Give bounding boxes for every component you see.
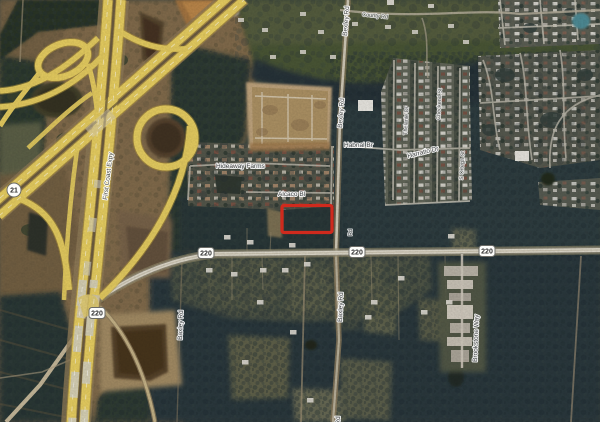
svg-text:Baxley Rd: Baxley Rd [334, 416, 342, 422]
svg-text:Alcaco Bl: Alcaco Bl [278, 191, 306, 198]
svg-text:Habnal Br: Habnal Br [344, 142, 374, 149]
svg-text:220: 220 [91, 311, 103, 318]
svg-text:220: 220 [481, 249, 493, 256]
svg-text:Baxley Rd: Baxley Rd [177, 310, 185, 340]
svg-text:Rd: Rd [348, 229, 354, 236]
svg-text:Hideaway Farms: Hideaway Farms [216, 163, 266, 170]
svg-text:220: 220 [200, 251, 212, 258]
svg-text:220: 220 [351, 250, 363, 257]
svg-text:Baxley Rd: Baxley Rd [337, 292, 345, 322]
svg-text:21: 21 [10, 188, 18, 195]
